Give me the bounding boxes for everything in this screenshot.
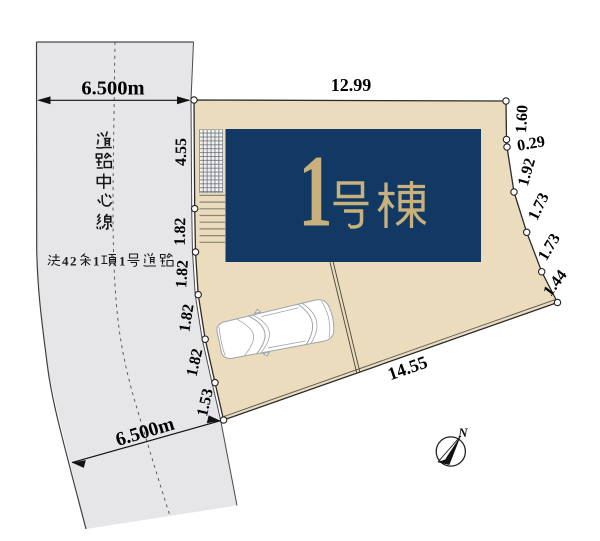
svg-text:0.29: 0.29 [516,133,547,155]
svg-text:1: 1 [119,254,126,269]
svg-text:4: 4 [62,254,69,269]
svg-text:1.60: 1.60 [513,105,531,134]
svg-text:2: 2 [70,254,77,269]
svg-text:1: 1 [299,133,333,247]
svg-text:1.92: 1.92 [515,156,539,188]
svg-text:4.55: 4.55 [173,138,190,166]
svg-text:6.500m: 6.500m [81,78,144,100]
svg-text:1.82: 1.82 [173,260,192,289]
svg-text:1.82: 1.82 [172,217,189,245]
svg-text:12.99: 12.99 [331,75,372,95]
svg-text:1.73: 1.73 [525,190,553,223]
svg-text:N: N [457,425,468,440]
svg-text:1: 1 [93,254,100,269]
svg-text:1.73: 1.73 [535,231,564,264]
